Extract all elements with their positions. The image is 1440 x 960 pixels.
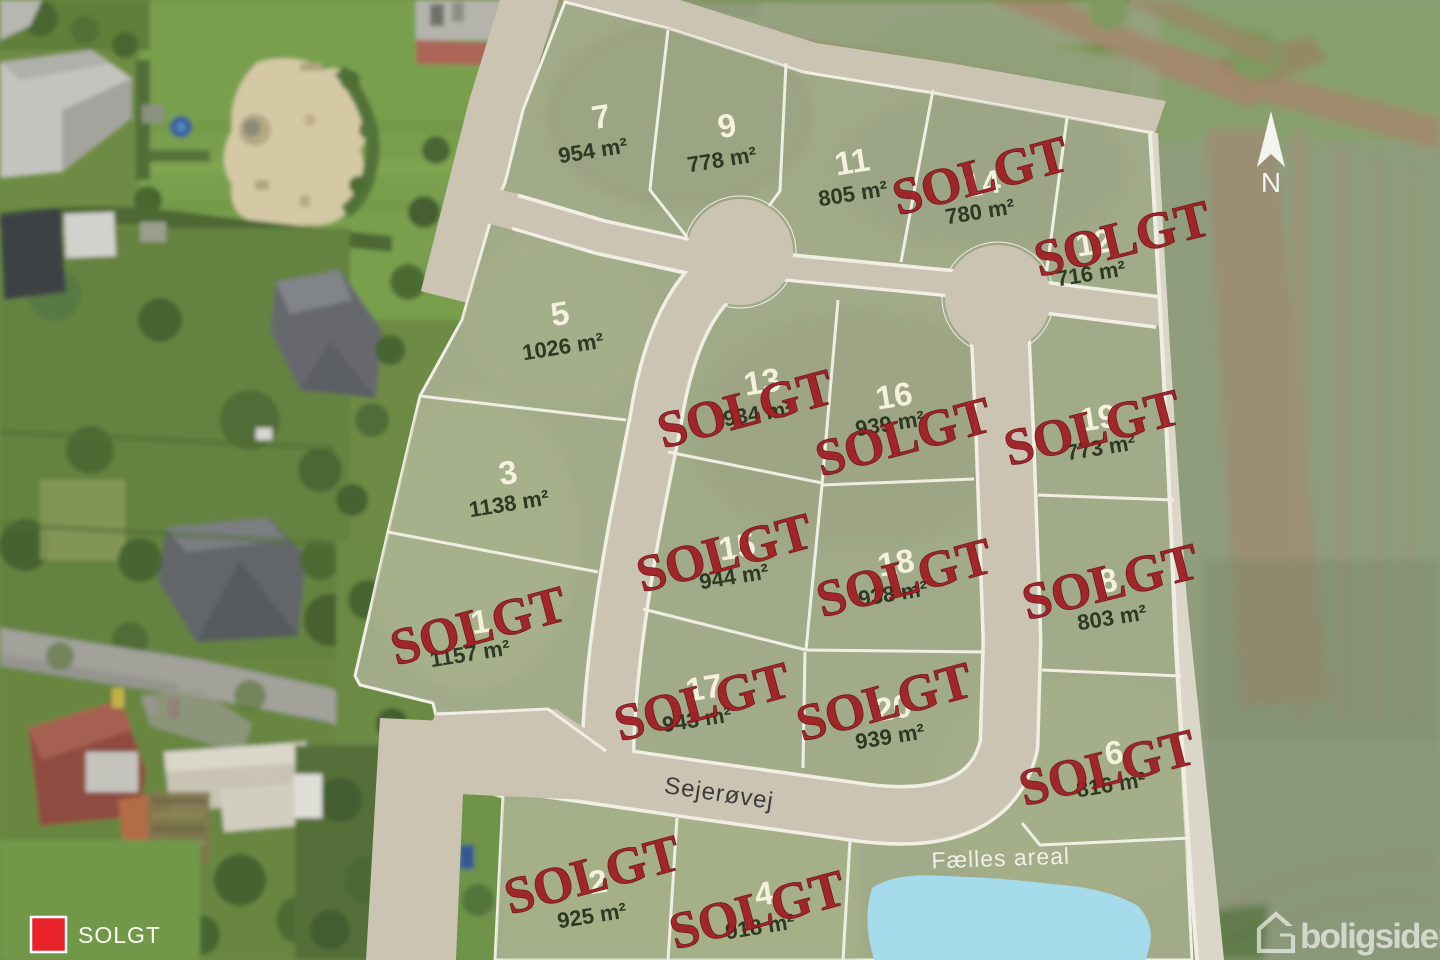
svg-text:SOLGT: SOLGT — [78, 922, 161, 948]
svg-text:boligsiden: boligsiden — [1300, 917, 1440, 956]
svg-text:11: 11 — [832, 141, 872, 183]
svg-text:Fælles areal: Fælles areal — [931, 843, 1070, 874]
svg-text:N: N — [1261, 167, 1281, 198]
